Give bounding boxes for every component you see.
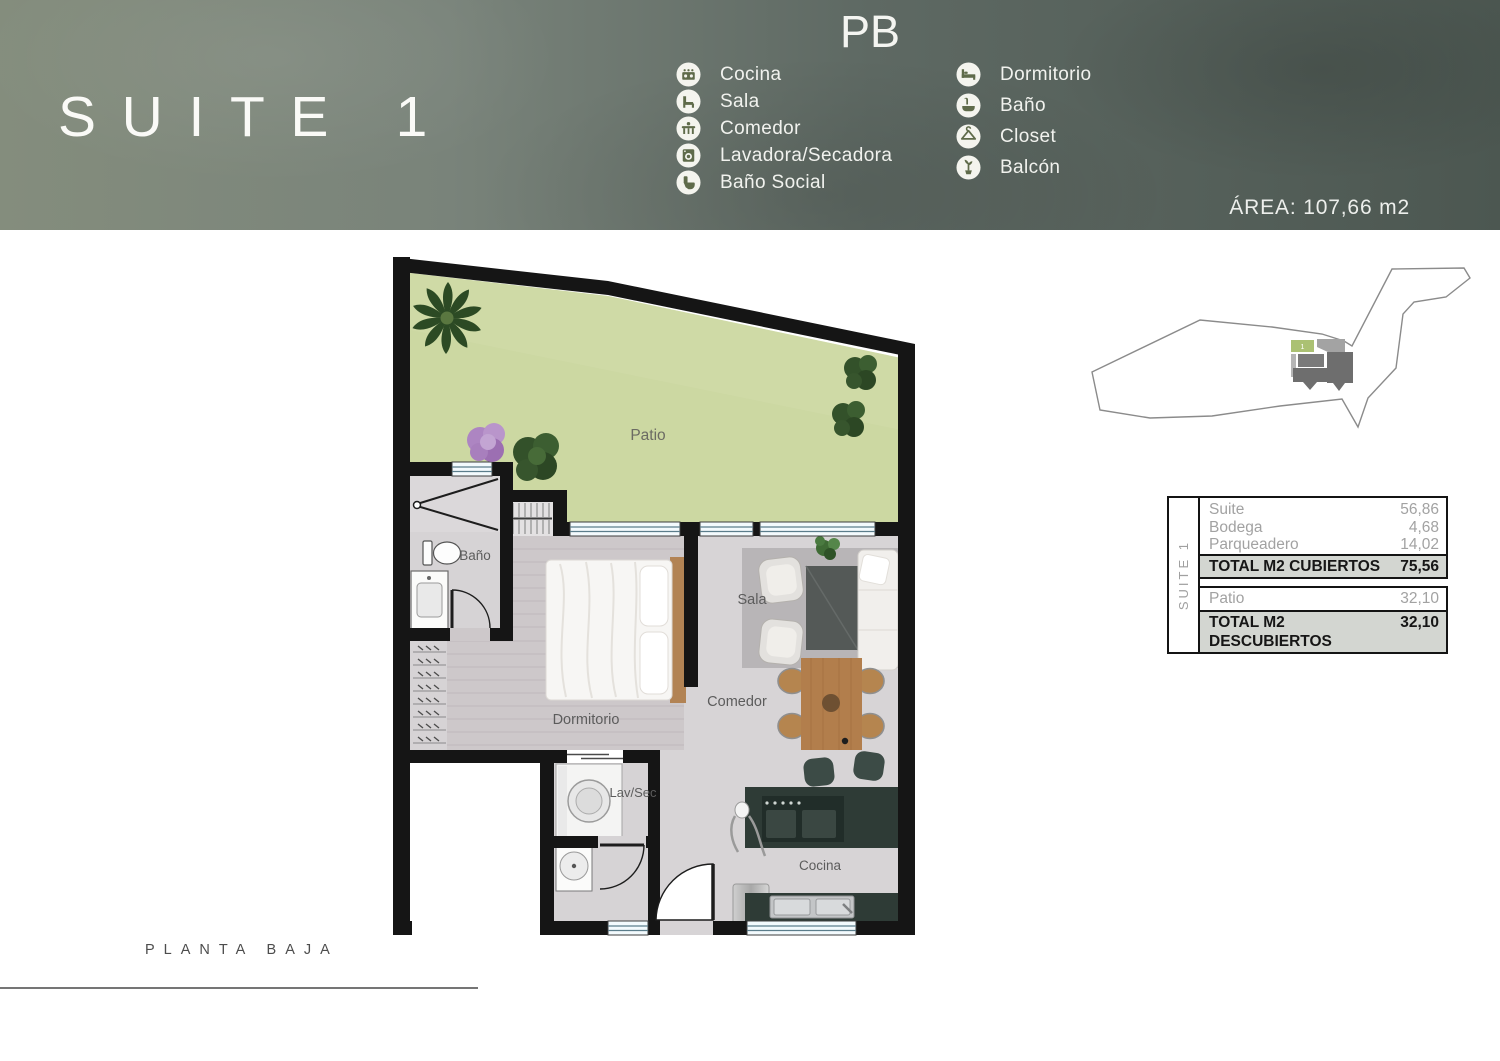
legend-item-bano-social: Baño Social (676, 170, 892, 195)
row-label: Patio (1209, 588, 1244, 610)
legend-label: Cocina (720, 64, 781, 86)
legend-label: Comedor (720, 118, 801, 140)
table-row: Patio 32,10 (1200, 588, 1446, 610)
powder-room-sink (556, 843, 592, 891)
balcony-icon (956, 155, 981, 180)
bathroom-sink (411, 571, 448, 629)
row-value: 4,68 (1409, 519, 1439, 537)
window (452, 462, 492, 476)
legend-label: Baño (1000, 95, 1046, 117)
legend-item-cocina: Cocina (676, 62, 892, 87)
area-total-label: ÁREA: 107,66 m2 (1229, 196, 1410, 220)
stove-icon (676, 62, 701, 87)
areas-table: SUITE 1 Suite 56,86 Bodega 4,68 Parquead… (1167, 496, 1448, 654)
row-label: Bodega (1209, 519, 1262, 537)
legend-label: Sala (720, 91, 760, 113)
bed (546, 557, 686, 703)
unit-number-label: 1 (1301, 344, 1305, 351)
site-boundary (1092, 268, 1470, 427)
legend-item-balcon: Balcón (956, 155, 1091, 180)
shower (410, 476, 500, 532)
row-label: Parqueadero (1209, 536, 1299, 554)
sofa-icon (676, 89, 701, 114)
legend-left-column: Cocina Sala (676, 62, 892, 195)
sala-label: Sala (737, 592, 767, 608)
bathtub-icon (956, 93, 981, 118)
side-label-text: SUITE 1 (1176, 540, 1191, 610)
kitchen-sink (770, 896, 854, 918)
legend-right-column: Dormitorio Baño Closet (956, 62, 1091, 180)
closet-floor (410, 640, 447, 750)
covered-areas-box: Suite 56,86 Bodega 4,68 Parqueadero 14,0… (1198, 496, 1448, 579)
window (570, 522, 680, 536)
covered-total-row: TOTAL M2 CUBIERTOS 75,56 (1200, 554, 1446, 577)
legend-item-bano: Baño (956, 93, 1091, 118)
legend-item-lavadora: Lavadora/Secadora (676, 143, 892, 168)
sliding-door (567, 750, 623, 763)
window (760, 522, 875, 536)
areas-table-main: Suite 56,86 Bodega 4,68 Parqueadero 14,0… (1198, 496, 1448, 654)
armchair (758, 618, 804, 666)
toilet-icon (676, 170, 701, 195)
floor-plan: Patio Baño Dormitorio Sala Comedor Lav/S… (392, 255, 920, 945)
legend-label: Baño Social (720, 172, 826, 194)
table-row: Parqueadero 14,02 (1200, 536, 1446, 554)
header-band: SUITE 1 PB Cocina Sala (0, 0, 1500, 230)
dining-table-icon (676, 116, 701, 141)
bano-label: Baño (459, 548, 491, 563)
dormitorio-label: Dormitorio (553, 712, 620, 728)
floor-code: PB (812, 6, 928, 58)
brochure-page: SUITE 1 PB Cocina Sala (0, 0, 1500, 1061)
comedor-label: Comedor (707, 694, 767, 710)
total-label: TOTAL M2 DESCUBIERTOS (1209, 613, 1400, 651)
row-value: 56,86 (1400, 501, 1439, 519)
row-value: 14,02 (1400, 536, 1439, 554)
entry-floor (660, 921, 713, 935)
legend-item-sala: Sala (676, 89, 892, 114)
toilet (423, 541, 461, 565)
cocina-label: Cocina (799, 858, 842, 873)
patio-label: Patio (630, 427, 665, 444)
page-title: SUITE 1 (58, 84, 453, 150)
legend-item-comedor: Comedor (676, 116, 892, 141)
bed-icon (956, 62, 981, 87)
total-value: 75,56 (1400, 557, 1439, 576)
areas-table-side-label: SUITE 1 (1167, 496, 1200, 654)
window (608, 921, 648, 935)
washer-icon (676, 143, 701, 168)
legend-label: Dormitorio (1000, 64, 1091, 86)
washer-dryer (556, 764, 622, 838)
lavsec-label: Lav/Sec (610, 785, 657, 800)
window (747, 921, 856, 935)
uncovered-areas-box: Patio 32,10 TOTAL M2 DESCUBIERTOS 32,10 (1198, 586, 1448, 654)
legend-label: Closet (1000, 126, 1056, 148)
total-label: TOTAL M2 CUBIERTOS (1209, 557, 1380, 576)
legend-item-closet: Closet (956, 124, 1091, 149)
legend-label: Lavadora/Secadora (720, 145, 892, 167)
hanger-icon (956, 124, 981, 149)
footer-divider (0, 987, 478, 989)
row-label: Suite (1209, 501, 1244, 519)
table-row: Bodega 4,68 (1200, 519, 1446, 537)
table-row: Suite 56,86 (1200, 498, 1446, 519)
window (700, 522, 753, 536)
green-tree (513, 433, 559, 481)
row-value: 32,10 (1400, 588, 1439, 610)
plan-caption: PLANTA BAJA (145, 942, 339, 958)
sofa (858, 550, 898, 670)
green-tree (844, 355, 877, 390)
total-value: 32,10 (1400, 613, 1439, 651)
uncovered-total-row: TOTAL M2 DESCUBIERTOS 32,10 (1200, 610, 1446, 652)
legend-item-dormitorio: Dormitorio (956, 62, 1091, 87)
site-location-map: 1 (1080, 256, 1480, 436)
legend-label: Balcón (1000, 157, 1060, 179)
